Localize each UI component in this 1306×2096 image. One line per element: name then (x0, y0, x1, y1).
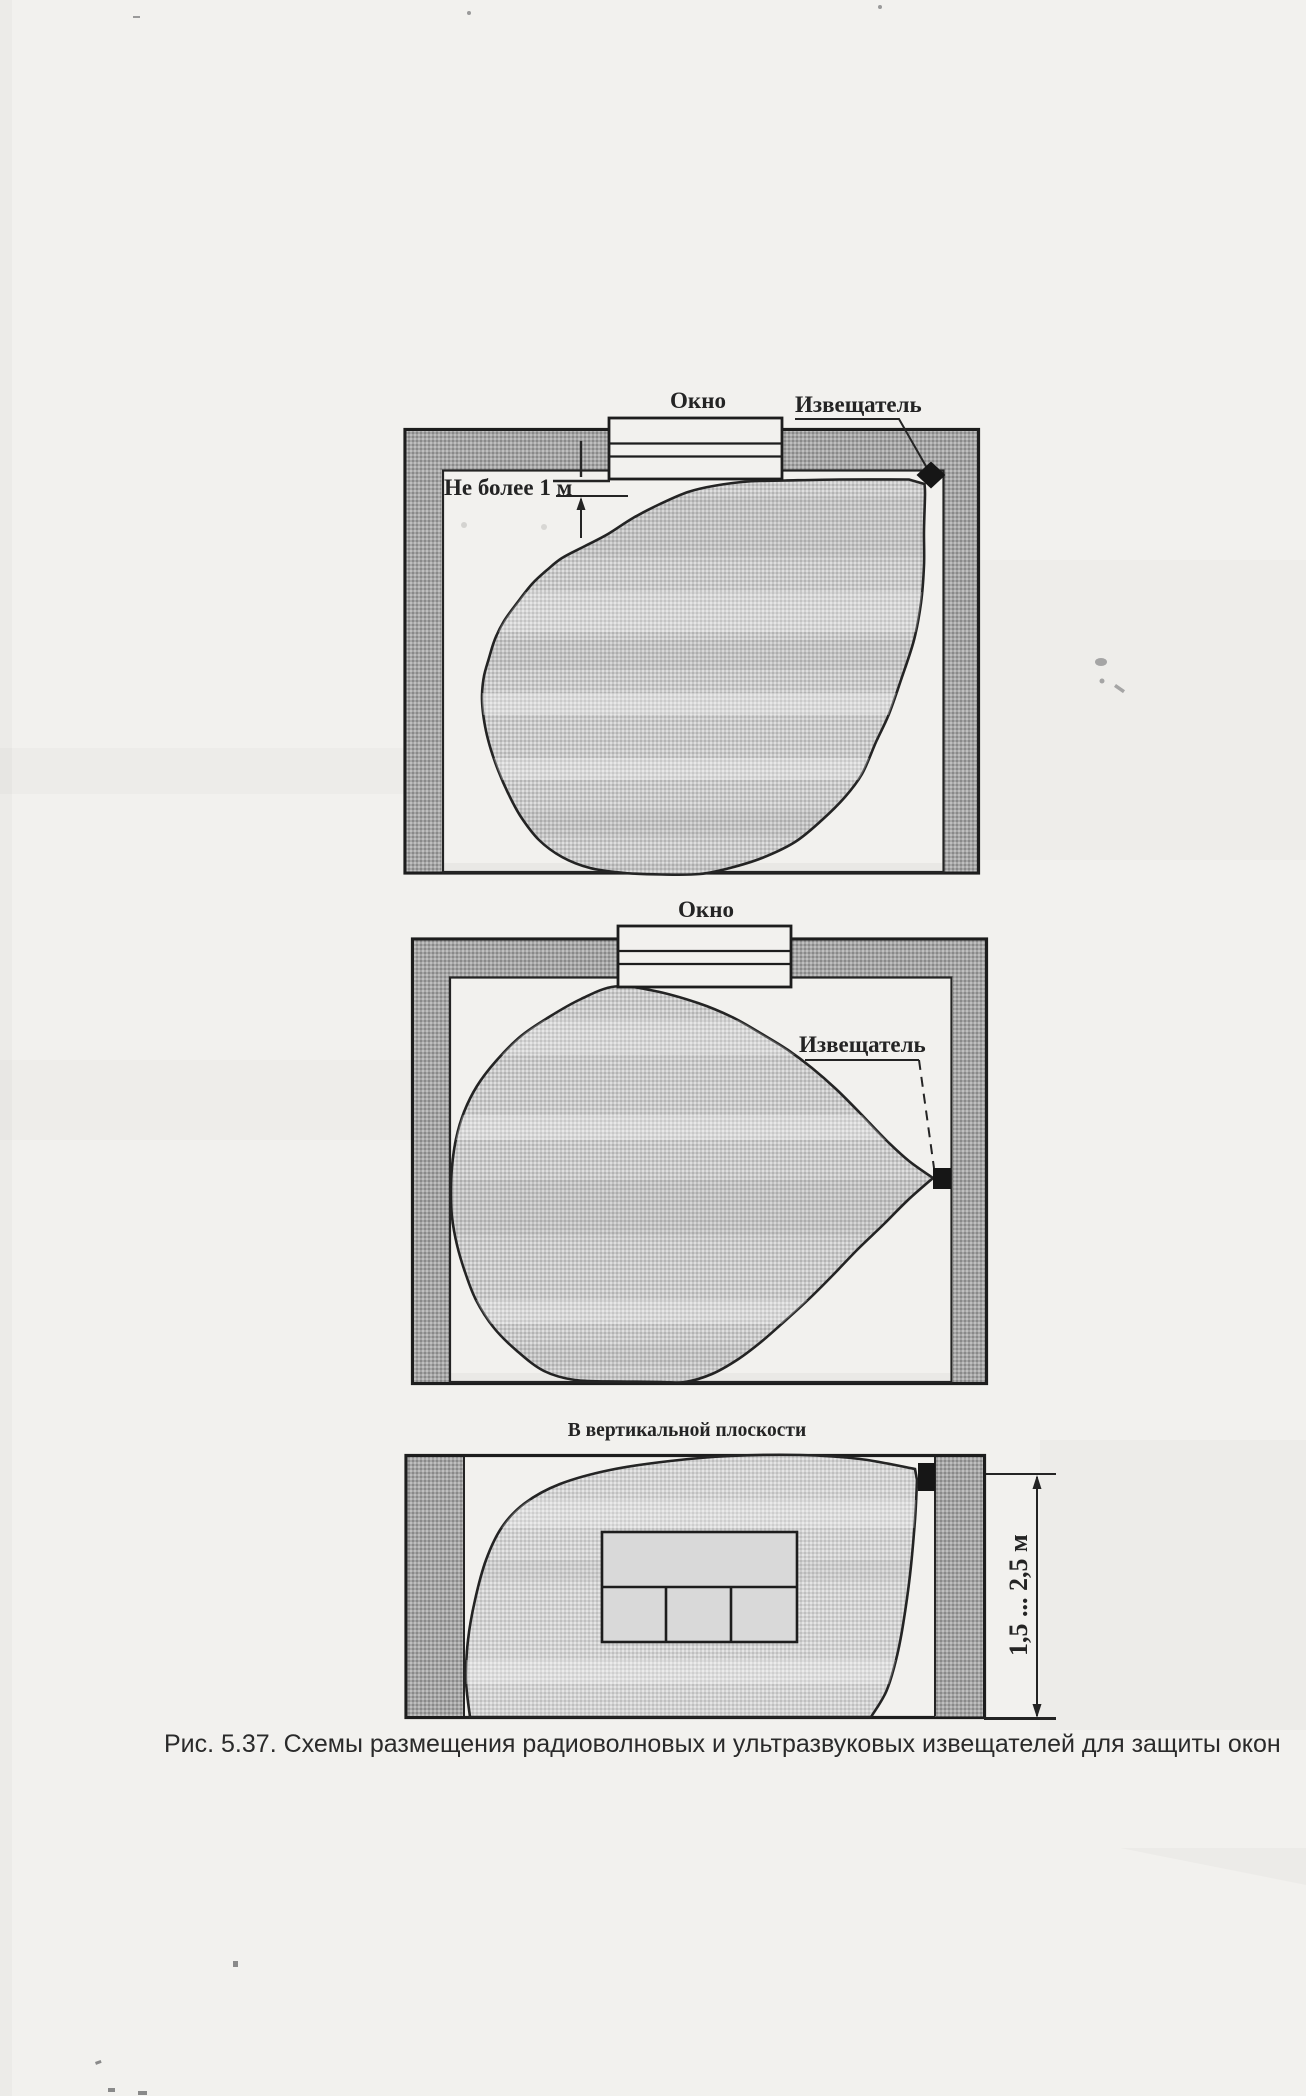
svg-text:Извещатель: Извещатель (795, 392, 922, 417)
svg-text:Рис. 5.37. Схемы размещения ра: Рис. 5.37. Схемы размещения радиоволновы… (164, 1730, 1281, 1758)
svg-text:Извещатель: Извещатель (799, 1032, 926, 1057)
svg-text:Окно: Окно (678, 897, 734, 922)
svg-text:Окно: Окно (670, 388, 726, 413)
svg-text:В вертикальной плоскости: В вертикальной плоскости (568, 1420, 806, 1441)
svg-text:Не более 1 м: Не более 1 м (444, 475, 572, 500)
svg-text:1,5 ... 2,5 м: 1,5 ... 2,5 м (1004, 1534, 1033, 1656)
